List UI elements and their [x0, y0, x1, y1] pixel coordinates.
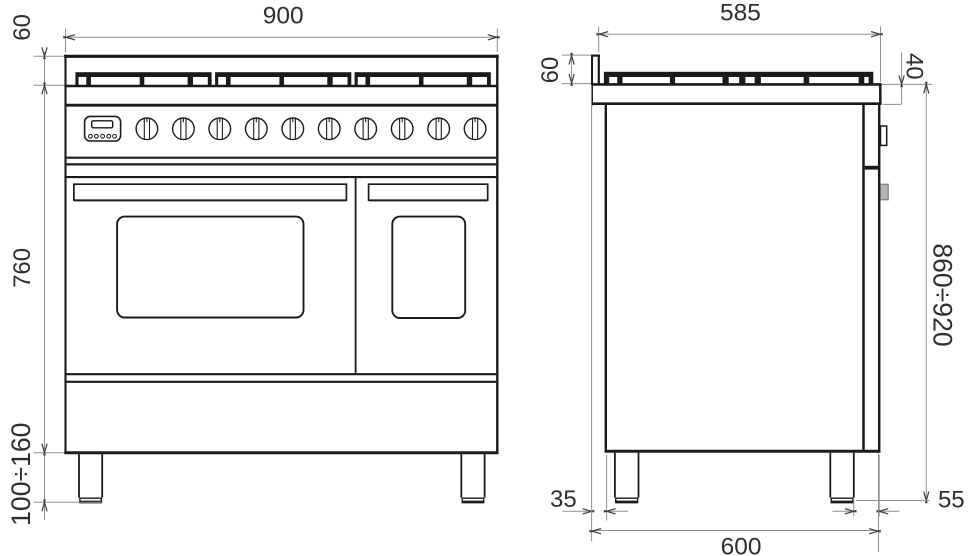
svg-text:585: 585 — [720, 0, 761, 27]
svg-text:40: 40 — [901, 53, 928, 80]
svg-text:600: 600 — [721, 534, 762, 556]
svg-text:860÷920: 860÷920 — [928, 243, 958, 346]
svg-text:900: 900 — [263, 3, 304, 30]
svg-text:60: 60 — [537, 57, 564, 84]
svg-text:60: 60 — [9, 14, 36, 41]
svg-text:55: 55 — [938, 487, 965, 514]
svg-text:35: 35 — [550, 486, 577, 513]
svg-text:100÷160: 100÷160 — [6, 423, 36, 526]
svg-text:760: 760 — [9, 248, 36, 288]
